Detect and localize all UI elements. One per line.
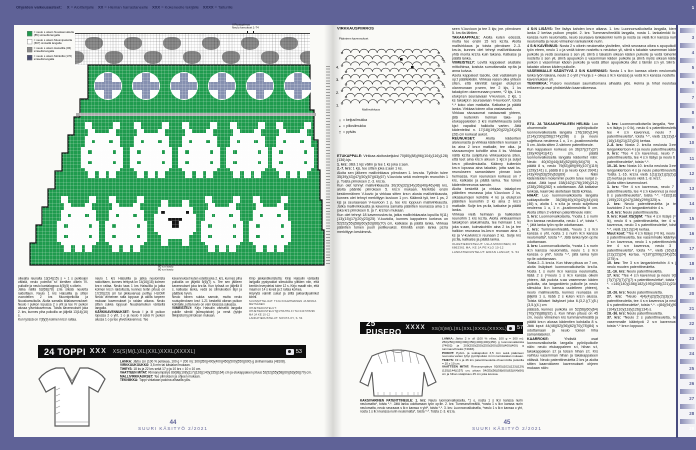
- paragraph: Höyrytä valmiit sukat ja silitä jakkardi…: [249, 292, 319, 299]
- svg-text:2.: 2.: [336, 90, 339, 95]
- ruler-mark: 17: [678, 247, 696, 262]
- paragraph: oikealta reunalta 13(14)(15) s + 1 s pui…: [18, 277, 88, 288]
- bottom-bar: [0, 437, 696, 450]
- difficulty-level: XXXX: [203, 5, 214, 10]
- paragraph: OHJETIEDUSTELUT: ULLA MIKKONEN, 03 68623…: [452, 243, 521, 250]
- paragraph: Neulo toinen sukka samoin, mutta neulo r…: [172, 296, 242, 307]
- paragraph: TEKNIIKKA: Pusero neulotaan saumattomana…: [527, 82, 678, 90]
- svg-text:1.: 1.: [336, 102, 339, 107]
- pattern-24-photo-ref: 53: [296, 349, 302, 355]
- difficulty-level: Ohjeiden vaikeusasteet:: [16, 5, 62, 10]
- paragraph: KAKSIVÄRINEN PATENTTINEULE: 1. krs: Neul…: [360, 399, 523, 414]
- right-column-4: 1. krs: Luonnonvalkoisella langalla, *te…: [607, 122, 678, 425]
- paragraph: 37. krs: *Neulo 2 s patenttineuletta, te…: [607, 316, 678, 329]
- ruler-mark: 21: [678, 307, 696, 322]
- paragraph: LANKATIEDUSTELUT: NOVITA OY, S. 54: [249, 317, 319, 320]
- ruler-mark: 16: [678, 232, 696, 247]
- paragraph: LANKATIEDUSTELUT: EIRAN LANGAT, S. 54: [452, 251, 521, 255]
- crochet-top-note: Päänteen kavennukset: [339, 37, 379, 47]
- paragraph: Virkkaa vielä helmaan ja halkioiden reun…: [452, 212, 521, 241]
- chart-bottom-labels: 80 s:n kuvio 80 s:n kuvio: [158, 265, 218, 277]
- ruler-mark: 4: [678, 51, 696, 66]
- paragraph: 1. krs: Luonnonvalkoisella langalla, *te…: [607, 122, 678, 143]
- chart-outline: [30, 65, 324, 265]
- ruler-mark: 24: [678, 352, 696, 367]
- ruler: 1234567891011121314151617181920212223242…: [678, 0, 696, 450]
- ruler-mark: 27: [678, 397, 696, 412]
- crochet-legend-item: ○= ketjusilmukka: [337, 118, 447, 123]
- paragraph: Muut koot: *Tee 4 s:n lisäys (=0 lk), ne…: [607, 231, 678, 260]
- paragraph: päässä, kunnes puikolla on 52(56)(60)(64…: [527, 307, 598, 336]
- paragraph: Kun olet tehnyt 18 kavennuskrs:ta, jatka…: [337, 213, 448, 234]
- paragraph: Virkkaa sivusaumat vastaavasti yhteen, j…: [452, 111, 521, 136]
- ruler-mark: 12: [678, 172, 696, 187]
- pattern-25-photo-ref: 57: [517, 325, 523, 331]
- ruler-mark: 28: [678, 412, 696, 427]
- left-column-3: kavennukset kuten edellä joka 2. krs, ku…: [172, 277, 242, 339]
- ruler-mark: 11: [678, 157, 696, 172]
- pattern-25-difficulty: XXXX: [402, 325, 426, 331]
- difficulty-bar-text: Ohjeiden vaikeusasteet: X = Aloittelijal…: [16, 5, 576, 10]
- pattern-24-header: 24 TOPPI XXX XS(S)M(L)XL(XXL)XXXL(XXXXL)…: [38, 345, 306, 358]
- svg-text:3.: 3.: [336, 77, 339, 82]
- right-column-3: ETU- JA TAKAKAPPALEEN HELMA: Luo ohuemma…: [527, 122, 598, 425]
- right-footer: 45 SUURI KÄSITYÖ 2/2021: [432, 420, 582, 436]
- ruler-mark: 25: [678, 367, 696, 382]
- paragraph: SUUNNITTELIJAT: TIIJA KOLEHMAINEN JA MIN…: [249, 300, 319, 306]
- paragraph: 4 S:N LISÄYS: Tee lisäys kahden krs:n ai…: [527, 27, 678, 44]
- pattern-24-specs: LANKA: Järbo Lin (100 % pellavaa, 100 g …: [120, 360, 316, 426]
- ruler-mark: 10: [678, 141, 696, 156]
- ruler-mark: 13: [678, 187, 696, 202]
- right-column-1: ETUKAPPALE: Virkkaa aloitusketjuksi 70(8…: [337, 154, 448, 316]
- left-column-2: neulo 1 krs Haisulilla ja jatka neulomis…: [95, 277, 165, 339]
- paragraph: kavennukset kuten edellä joka 2. krs, ku…: [172, 277, 242, 296]
- crochet-diagram: 4.3.2.1.5.3.1.: [336, 47, 448, 109]
- paragraph: TEKNIIKKA: Toppi virkataan paloina alhaa…: [120, 379, 316, 383]
- paragraph: OHJETIEDUSTELUT: OHJETIEDUSTELUT@VHAHTA.…: [249, 307, 319, 316]
- paragraph: neulo 1 krs Haisulilla ja jatka neulomis…: [95, 277, 165, 310]
- ruler-mark: 19: [678, 277, 696, 292]
- ruler-mark: 8: [678, 111, 696, 126]
- ruler-mark: 5: [678, 66, 696, 81]
- ruler-mark: 3: [678, 36, 696, 51]
- paragraph: Aloita sen jälkeen mallivirkkaus piirrok…: [337, 171, 448, 184]
- left-column-1: oikealta reunalta 13(14)(15) s + 1 s pui…: [18, 277, 88, 339]
- ruler-mark: 22: [678, 322, 696, 337]
- ruler-mark: 23: [678, 337, 696, 352]
- paragraph: Aseta kappaleet tasolle, olat vastakkain…: [452, 73, 521, 111]
- ruler-mark: 15: [678, 217, 696, 232]
- right-columns-3-4-top: 4 S:N LISÄYS: Tee lisäys kahden krs:n ai…: [527, 27, 678, 117]
- pattern-25-title: 25 PUSERO: [360, 319, 402, 337]
- difficulty-level: XXX: [152, 5, 160, 10]
- pattern-24-title: 24 TOPPI: [38, 347, 86, 357]
- ruler-mark: 29: [678, 427, 696, 442]
- crochet-legend-item: †= pylväs: [337, 130, 447, 135]
- paragraph: VIIMEISTELY: Kirjo Haisulin värisellä la…: [172, 307, 242, 318]
- paragraph: 3. krs: Luonnonvalkoisella, *nosta 1 s n…: [527, 244, 598, 261]
- paragraph: Aloita keskeltä ja virkkaa takakpl:en pä…: [452, 187, 521, 212]
- pattern-24-sizes: XS(S)M(L)XL(XXL)XXXL(XXXXL): [107, 349, 196, 355]
- left-footer: 44 SUURI KÄSITYÖ 2/2021: [98, 420, 248, 436]
- ruler-mark: 2: [678, 21, 696, 36]
- svg-text:4.: 4.: [336, 65, 339, 70]
- crochet-bottom-note: Mallinvirkkaus: [362, 108, 422, 116]
- paragraph: Toista 2.-3. krs:ia. Kun hihan pituus on…: [527, 261, 598, 307]
- ruler-mark: 7: [678, 96, 696, 111]
- paragraph: KAARROKE: Yhdistä osat luonnonvalkoisell…: [527, 337, 598, 371]
- paragraph: 9. krs: *Tee 4 s:n kavennus, neulo 7 s p…: [607, 151, 678, 164]
- chart-row-numbers: [326, 66, 330, 264]
- chart-bottom-label-2: 80 s:n kuvio: [158, 268, 218, 271]
- paragraph: HIHAT: Luo luonnonvalkoisella langalla s…: [527, 194, 598, 215]
- ruler-mark: 20: [678, 292, 696, 307]
- pattern-25-sizes: XS(S)M(L)XL(XXL)XXXL(XXXXL): [426, 326, 507, 331]
- paragraph: ETU- JA TAKAKAPPALEEN HELMA: Luo ohuemma…: [527, 122, 598, 147]
- paragraph: Kun olet tehnyt mallivirkkausta 30(30)(3…: [337, 183, 448, 212]
- svg-text:1.: 1.: [443, 84, 446, 89]
- pattern-25-header: 25 PUSERO XXXX XS(S)M(L)XL(XXL)XXXL(XXXX…: [360, 322, 523, 334]
- paragraph: 17. krs: *Tee 4 s:n kavennus ja neulo 9(…: [607, 274, 678, 291]
- chart-divider-row: [76, 113, 316, 116]
- crochet-title: VIRKKAUSPIIRROS: [337, 26, 447, 35]
- left-magazine-name: SUURI KÄSITYÖ 2/2021: [98, 426, 248, 432]
- ruler-mark: 14: [678, 202, 696, 217]
- ruler-mark: 6: [678, 81, 696, 96]
- paragraph: Jatka näillä 62(68)(78) s:lla sileää neu…: [18, 288, 88, 318]
- paragraph: REUNUKSET: Aloita kädentien alareunasta …: [452, 136, 521, 187]
- crochet-legend-item: ▪= piilosilmukka: [337, 124, 447, 129]
- magazine-spread: Ohjeiden vaikeusasteet: X = Aloittelijal…: [0, 0, 696, 450]
- paragraph: VIIMEISTELY: Levitä kappaleet alustalle …: [452, 61, 521, 74]
- svg-text:5.: 5.: [443, 58, 446, 63]
- difficulty-bar: Ohjeiden vaikeusasteet: X = Aloittelijal…: [16, 5, 576, 19]
- paragraph: Kun työssä on 7(8)(9) kolmen krs:n raita…: [18, 318, 88, 322]
- paragraph: 10.-16. krs: Nosta 10. krs:lla neulosta …: [607, 164, 678, 181]
- ruler-mark: 9: [678, 126, 696, 141]
- paragraph: VASEMMALLE KÄÄNTYVÄ 2 S:N KAVENNUS: Nost…: [527, 69, 678, 82]
- paragraph: 27. krs: *Neulo 4(4)(4)(2)(5)(2)(3)(3) s…: [607, 295, 678, 312]
- paragraph: KÄRKIKAVENNUKSET: Neulo I ja III puikon …: [95, 310, 165, 321]
- paragraph: 1. krs: *Tee 4 s:n kavennus, neulo 7 s p…: [607, 185, 678, 202]
- right-magazine-name: SUURI KÄSITYÖ 2/2021: [432, 426, 582, 432]
- paragraph: 9. krs: Koot XS(S)/M: *Tee 4 s:n lisäys …: [607, 215, 678, 232]
- paragraph: 2. krs: Tummanvihreällä, *neulo 1 s lk:n…: [527, 227, 598, 244]
- paragraph: TAKAKAPPALE: Aloita kuten edessä, mutta …: [452, 35, 521, 60]
- svg-text:3.: 3.: [443, 71, 446, 76]
- camera-icon: [507, 325, 515, 331]
- paragraph: LANKA: Järbo 2 tr ull (100 % villaa, 100…: [442, 337, 524, 351]
- paragraph: Kirjo jakkardikoristetta: Kirjo Haisulin…: [249, 277, 319, 292]
- right-column-2: seen V-kuvioon ja tee 3 kjs; jne. piirro…: [452, 27, 521, 318]
- pattern-25-specs: LANKA: Järbo 2 tr ull (100 % villaa, 100…: [442, 337, 524, 397]
- paragraph: Kun kappaleen korkeus on 36(37)(37)(37)(…: [527, 147, 598, 193]
- ruler-mark: 1: [678, 6, 696, 21]
- left-column-4: Kirjo jakkardikoristetta: Kirjo Haisulin…: [249, 277, 319, 339]
- paragraph: VAATTEEN MITAT: Rinnanympärys 92(95)(102…: [442, 365, 524, 376]
- pattern-25-garment-sketch: [358, 338, 438, 400]
- ruler-mark: 18: [678, 262, 696, 277]
- paragraph: 1. krs: Luonnonvalkoisella, *nosta 1 s n…: [527, 215, 598, 228]
- camera-icon: [286, 349, 294, 355]
- paragraph: 4 S:N KAVENNUS: Nosta 2 s oikein neuloma…: [527, 44, 678, 69]
- ruler-mark: 26: [678, 382, 696, 397]
- pattern-24-difficulty: XXX: [86, 348, 107, 355]
- crochet-legend: ○= ketjusilmukka▪= piilosilmukka†= pylvä…: [337, 118, 447, 135]
